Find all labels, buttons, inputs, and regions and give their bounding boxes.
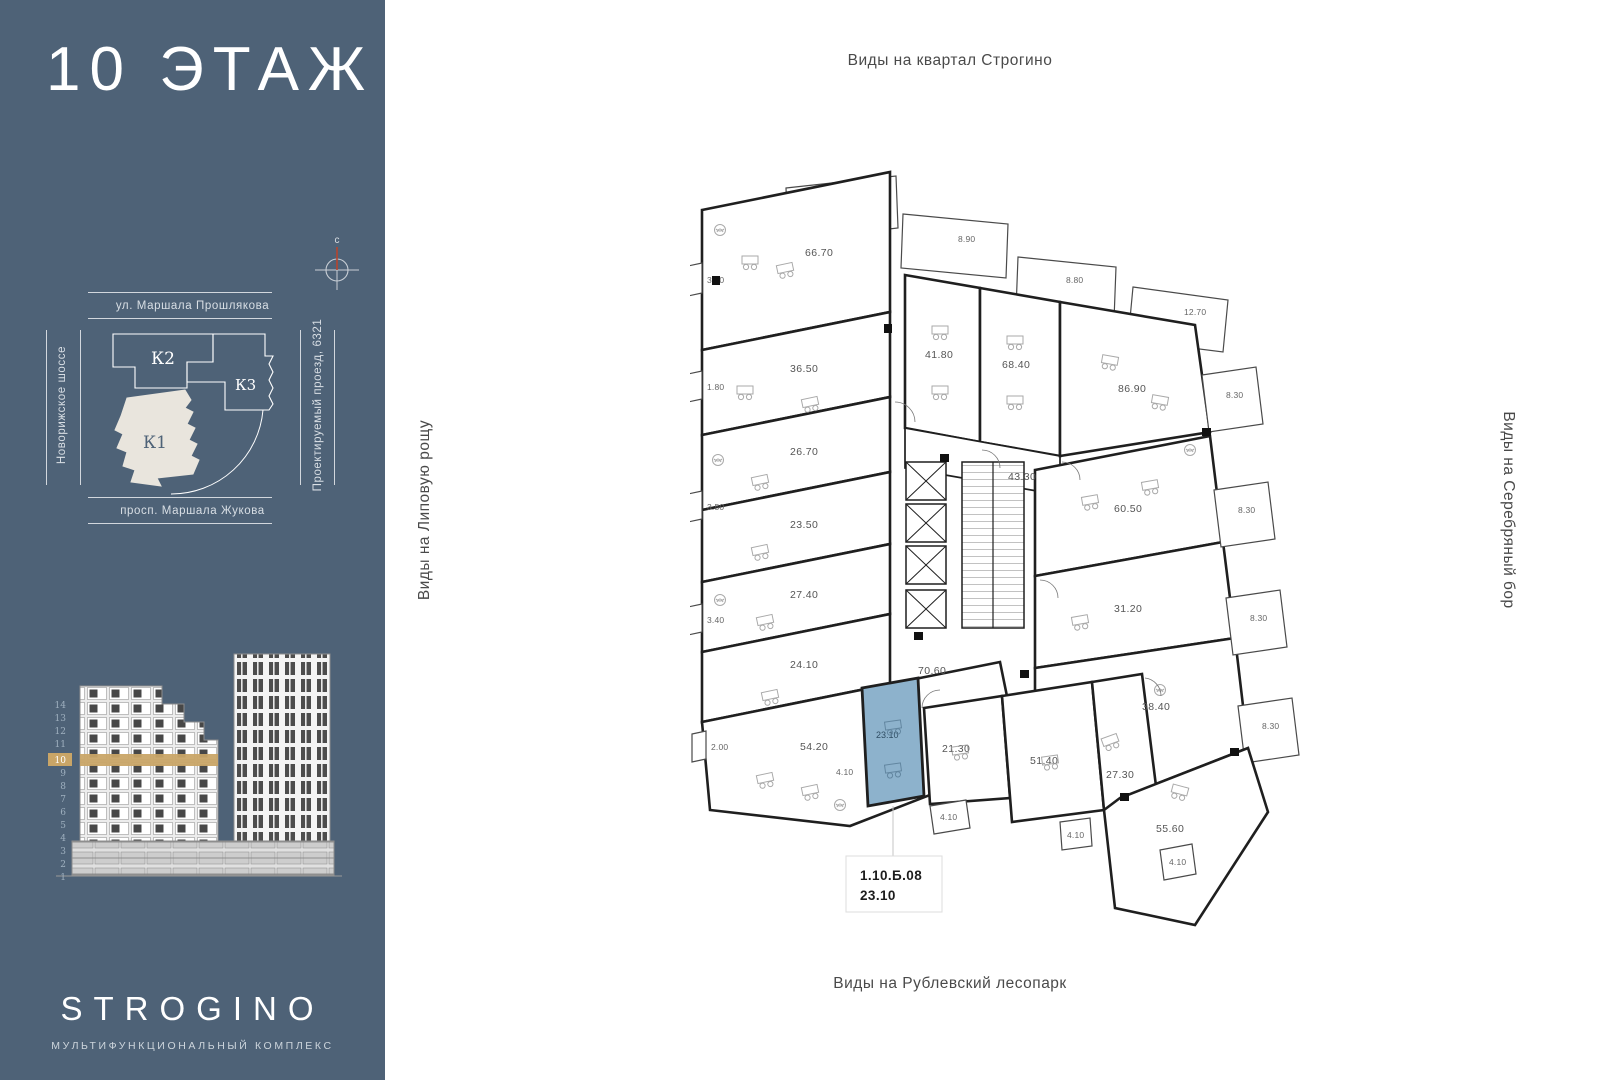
elevation-right-tower [234,654,330,841]
wall-blob [914,632,923,640]
site-map: К2 К3 К1 [95,322,285,502]
floor-plan: 8.80 8.90 8.80 12.70 3.40 1.80 3.50 3.40… [690,150,1310,950]
unit-room[interactable] [1002,682,1104,822]
view-label-left: Виды на Липовую рощу [416,420,434,600]
balcony-area-label: 8.80 [1066,275,1083,285]
floor-number[interactable]: 14 [55,701,67,711]
room-area-label: 27.40 [790,589,818,601]
room-area-label: 23.50 [790,519,818,531]
view-label-right: Виды на Серебряный бор [1499,411,1517,608]
wall-blob [1230,748,1239,756]
corridor-area-label: 70.60 [918,665,946,677]
cell-area-label: 1.80 [707,382,724,392]
room-area-label: 54.20 [800,741,828,753]
cell-area-label: 4.10 [836,767,853,777]
unit-room[interactable] [1060,302,1210,456]
view-label-top: Виды на квартал Строгино [848,52,1053,70]
room-area-label: 36.50 [790,363,818,375]
floor-number[interactable]: 4 [60,834,66,844]
cell-area-label: 4.10 [940,812,957,822]
logo-subtitle: МУЛЬТИФУНКЦИОНАЛЬНЫЙ КОМПЛЕКС [0,1040,385,1052]
room-area-label: 26.70 [790,446,818,458]
wall-blob [1120,793,1129,801]
elevator-core [906,462,946,628]
wall-blob [712,276,720,285]
logo-title: STROGINO [0,990,385,1028]
map-frame-line [88,318,272,319]
wall-blob [1202,428,1211,436]
floor-number[interactable]: 12 [55,727,66,737]
balcony [692,731,706,762]
map-frame-line [334,330,335,485]
room-area-label: 86.90 [1118,383,1146,395]
compass-north-label: с [335,235,340,246]
wall-blob [884,324,892,333]
building-k1-label: К1 [143,433,167,453]
cell-area-label: 4.10 [1067,830,1084,840]
balcony-area-label: 8.30 [1262,721,1279,731]
compass-icon: с [315,232,361,292]
floor-number[interactable]: 11 [55,740,66,750]
floor-number[interactable]: 13 [55,714,67,724]
room-area-label: 24.10 [790,659,818,671]
room-area-label: 68.40 [1002,359,1030,371]
floor-number[interactable]: 9 [60,769,66,779]
room-area-label: 55.60 [1156,823,1184,835]
balcony-area-label: 8.30 [1238,505,1255,515]
floor-number[interactable]: 2 [60,860,66,870]
room-area-label: 31.20 [1114,603,1142,615]
room-area-label: 41.80 [925,349,953,361]
map-frame-line [80,330,81,485]
street-left-label: Новорижское шоссе [56,346,68,464]
selected-unit-area: 23.10 [860,888,896,903]
elevation-podium [72,841,334,875]
balcony [690,604,702,635]
room-area-label: 38.40 [1142,701,1170,713]
wall-blob [940,454,949,462]
room-area-label: 66.70 [805,247,833,259]
floor-number[interactable]: 7 [60,795,66,805]
building-k3-label: К3 [235,376,256,394]
floor-number[interactable]: 3 [60,847,66,857]
cell-area-label: 3.50 [707,502,724,512]
balcony [901,214,1008,278]
floor-number[interactable]: 5 [60,821,66,831]
floor-title: 10 ЭТАЖ [46,34,374,105]
cell-area-label: 2.00 [711,742,728,752]
room-area-label: 43.30 [1008,471,1036,483]
balcony [690,371,702,402]
street-bottom-label: просп. Маршала Жукова [0,505,385,517]
sidebar-panel: 10 ЭТАЖ с ул. Маршала Прошлякова Новориж… [0,0,385,1080]
balcony-area-label: 12.70 [1184,307,1206,317]
floor-number[interactable]: 8 [60,782,66,792]
balcony [690,491,702,522]
selected-unit-callout: 1.10.Б.08 23.10 [846,856,942,912]
balcony [690,263,702,296]
floor-number[interactable]: 1 [60,873,66,882]
floor-number-current[interactable]: 10 [55,756,67,766]
map-frame-line [300,330,301,485]
floor-number[interactable]: 6 [60,808,66,818]
balcony-area-label: 8.30 [1250,613,1267,623]
building-k3-outline [187,334,273,410]
room-area-label: 27.30 [1106,769,1134,781]
street-top-label: ул. Маршала Прошлякова [0,300,385,312]
selected-unit-room[interactable] [862,678,924,806]
cell-area-label: 4.10 [1169,857,1186,867]
view-label-bottom: Виды на Рублевский лесопарк [833,975,1066,993]
wall-blob [1020,670,1029,678]
staircase [962,462,1024,628]
selected-unit-number: 1.10.Б.08 [860,868,922,883]
unit-room[interactable] [980,288,1060,456]
street-right-label: Проектируемый проезд, 6321 [312,319,324,492]
map-frame-line [88,292,272,293]
elevation-floor10-stripe [80,754,218,766]
map-frame-line [88,523,272,524]
cell-area-label: 3.40 [707,615,724,625]
building-elevation: 14 13 12 11 10 9 8 7 6 5 4 3 2 1 [42,626,347,882]
balcony-area-label: 8.90 [958,234,975,244]
room-area-label: 60.50 [1114,503,1142,515]
balcony-area-label: 8.30 [1226,390,1243,400]
map-frame-line [46,330,47,485]
building-k2-label: К2 [151,349,175,369]
